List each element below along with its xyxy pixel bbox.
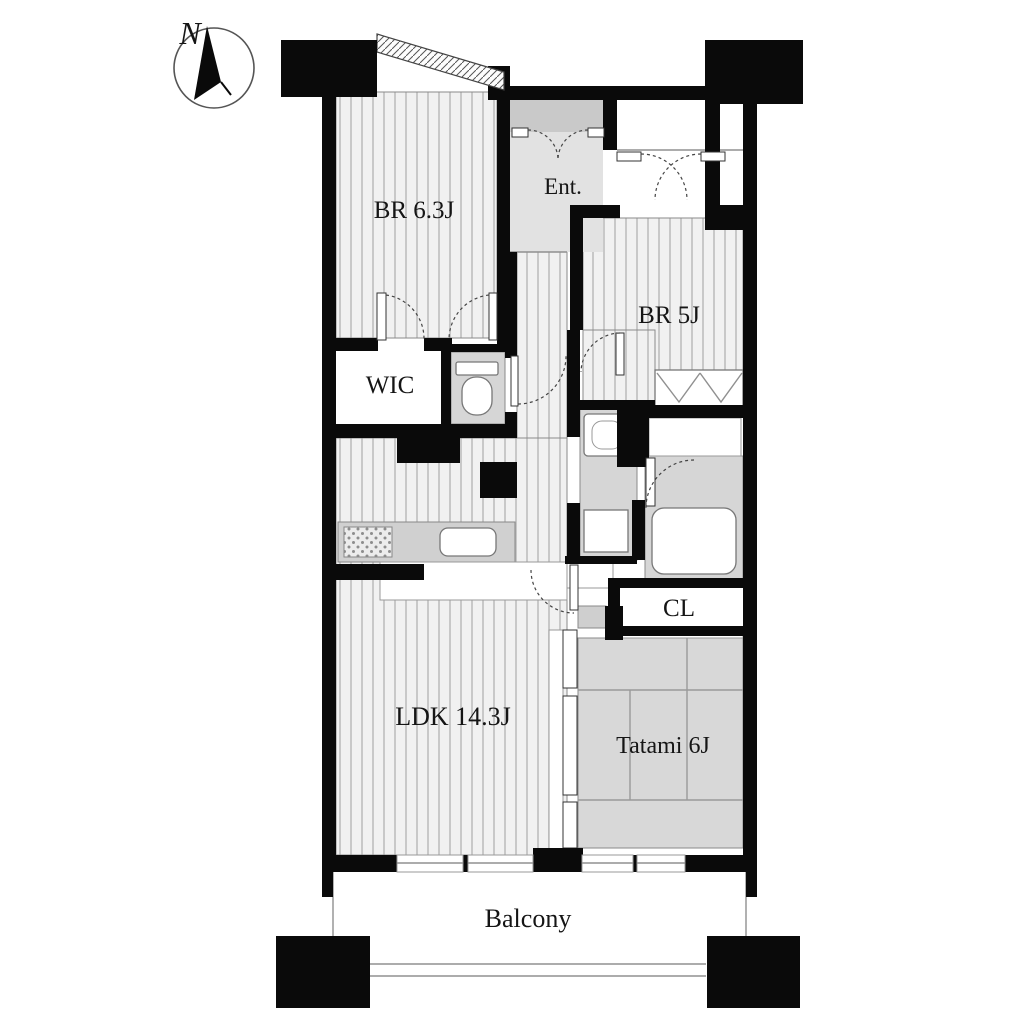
wall-toilet-right (505, 412, 517, 424)
sliding-door-panel (563, 696, 577, 795)
wall-kitchen-stub (336, 564, 424, 580)
bedroom2-label: BR 5J (638, 302, 700, 329)
wall-washroom-right (632, 408, 645, 458)
wall-washroom-right (632, 500, 645, 560)
ldk-label: LDK 14.3J (395, 702, 511, 731)
slanted-wall-hatch (377, 34, 504, 90)
wall-hall-stub (583, 205, 620, 218)
bath-counter (649, 418, 741, 456)
compass: N (174, 15, 254, 108)
window (582, 855, 633, 872)
wall-block (397, 428, 460, 463)
wall-entrance-right (603, 100, 617, 150)
sliding-door-panel (563, 630, 577, 688)
floor-plan-drawing: N BR 6.3J Ent. BR 5J WIC CL LDK 14.3J Ta… (0, 0, 1024, 1024)
pillar-top-left (281, 40, 377, 97)
wall-right (743, 100, 757, 872)
entrance-label: Ent. (544, 174, 582, 199)
toilet-bowl (462, 377, 492, 415)
floor-plan-page: N BR 6.3J Ent. BR 5J WIC CL LDK 14.3J Ta… (0, 0, 1024, 1024)
wall-block (480, 462, 517, 498)
wall-bedroom1-bottom (336, 338, 378, 351)
wall-top (490, 86, 708, 100)
wall-left-stub (322, 872, 333, 897)
wic-label: WIC (366, 372, 415, 399)
window (637, 855, 685, 872)
wall-corridor-right (567, 330, 580, 437)
wall-left (322, 92, 336, 872)
compass-needle-tail (221, 82, 231, 95)
closet-label: CL (663, 595, 695, 622)
wall-cl-top (608, 578, 743, 588)
sliding-door-panel (563, 802, 577, 848)
washing-machine (584, 510, 628, 552)
balcony-label: Balcony (485, 904, 572, 933)
window (397, 855, 463, 872)
wall-cl-bottom (608, 626, 743, 636)
wall-right-stub (746, 872, 757, 897)
bedroom1-label: BR 6.3J (374, 197, 455, 224)
entrance-porch (510, 100, 603, 132)
wall-wic-right (441, 344, 451, 424)
utility-gray-box (578, 606, 606, 628)
pillar-bottom-left (276, 936, 370, 1008)
wall-tatami-corner (605, 606, 623, 640)
wall-hall-stub (705, 205, 743, 218)
bathtub (652, 508, 736, 574)
kitchen-sink (440, 528, 496, 556)
toilet-tank (456, 362, 498, 375)
window (468, 855, 533, 872)
ldk-floor (336, 438, 567, 855)
tatami-label: Tatami 6J (616, 733, 710, 759)
wall-bottom-center (533, 848, 583, 872)
pillar-top-right (705, 40, 803, 104)
sliding-door-track (549, 630, 563, 855)
wall-bedroom2-left (570, 205, 583, 330)
wall-corridor-left (507, 252, 517, 344)
compass-north-label: N (178, 15, 202, 51)
stove (344, 527, 392, 557)
wall-closet-bottom (648, 405, 743, 418)
wall-washroom-bottom (565, 556, 637, 564)
wall-corridor-right (567, 503, 580, 560)
pillar-bottom-right (707, 936, 800, 1008)
